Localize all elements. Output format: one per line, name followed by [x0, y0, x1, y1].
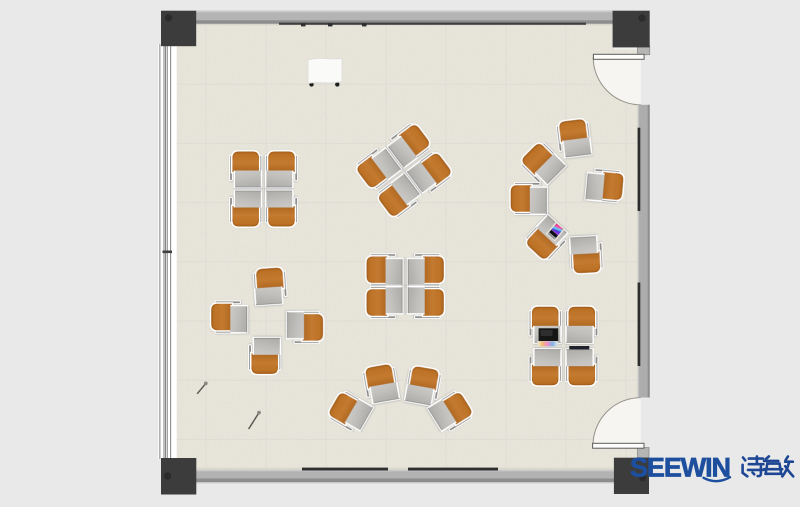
svg-text:SEEWIN: SEEWIN [630, 453, 731, 483]
